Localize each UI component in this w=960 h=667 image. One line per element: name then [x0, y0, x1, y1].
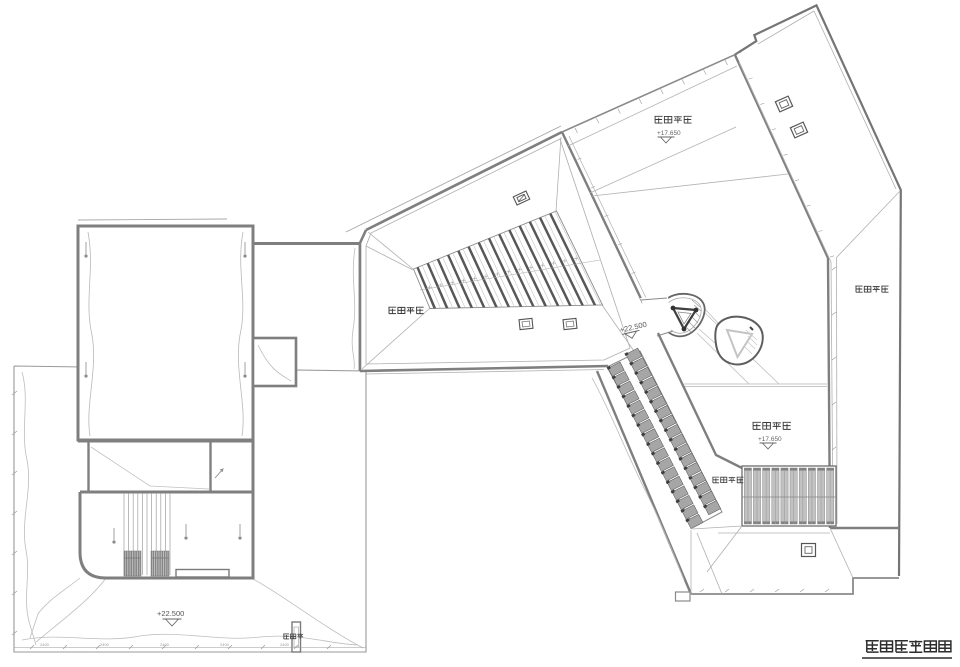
svg-text:2400: 2400: [220, 642, 230, 647]
svg-text:+17.650: +17.650: [657, 130, 681, 137]
svg-text:+17.650: +17.650: [758, 436, 782, 443]
svg-text:2400: 2400: [160, 642, 170, 647]
svg-text:2400: 2400: [100, 642, 110, 647]
svg-text:2400: 2400: [40, 642, 50, 647]
svg-text:2400: 2400: [280, 642, 290, 647]
svg-text:+22.500: +22.500: [157, 609, 184, 618]
